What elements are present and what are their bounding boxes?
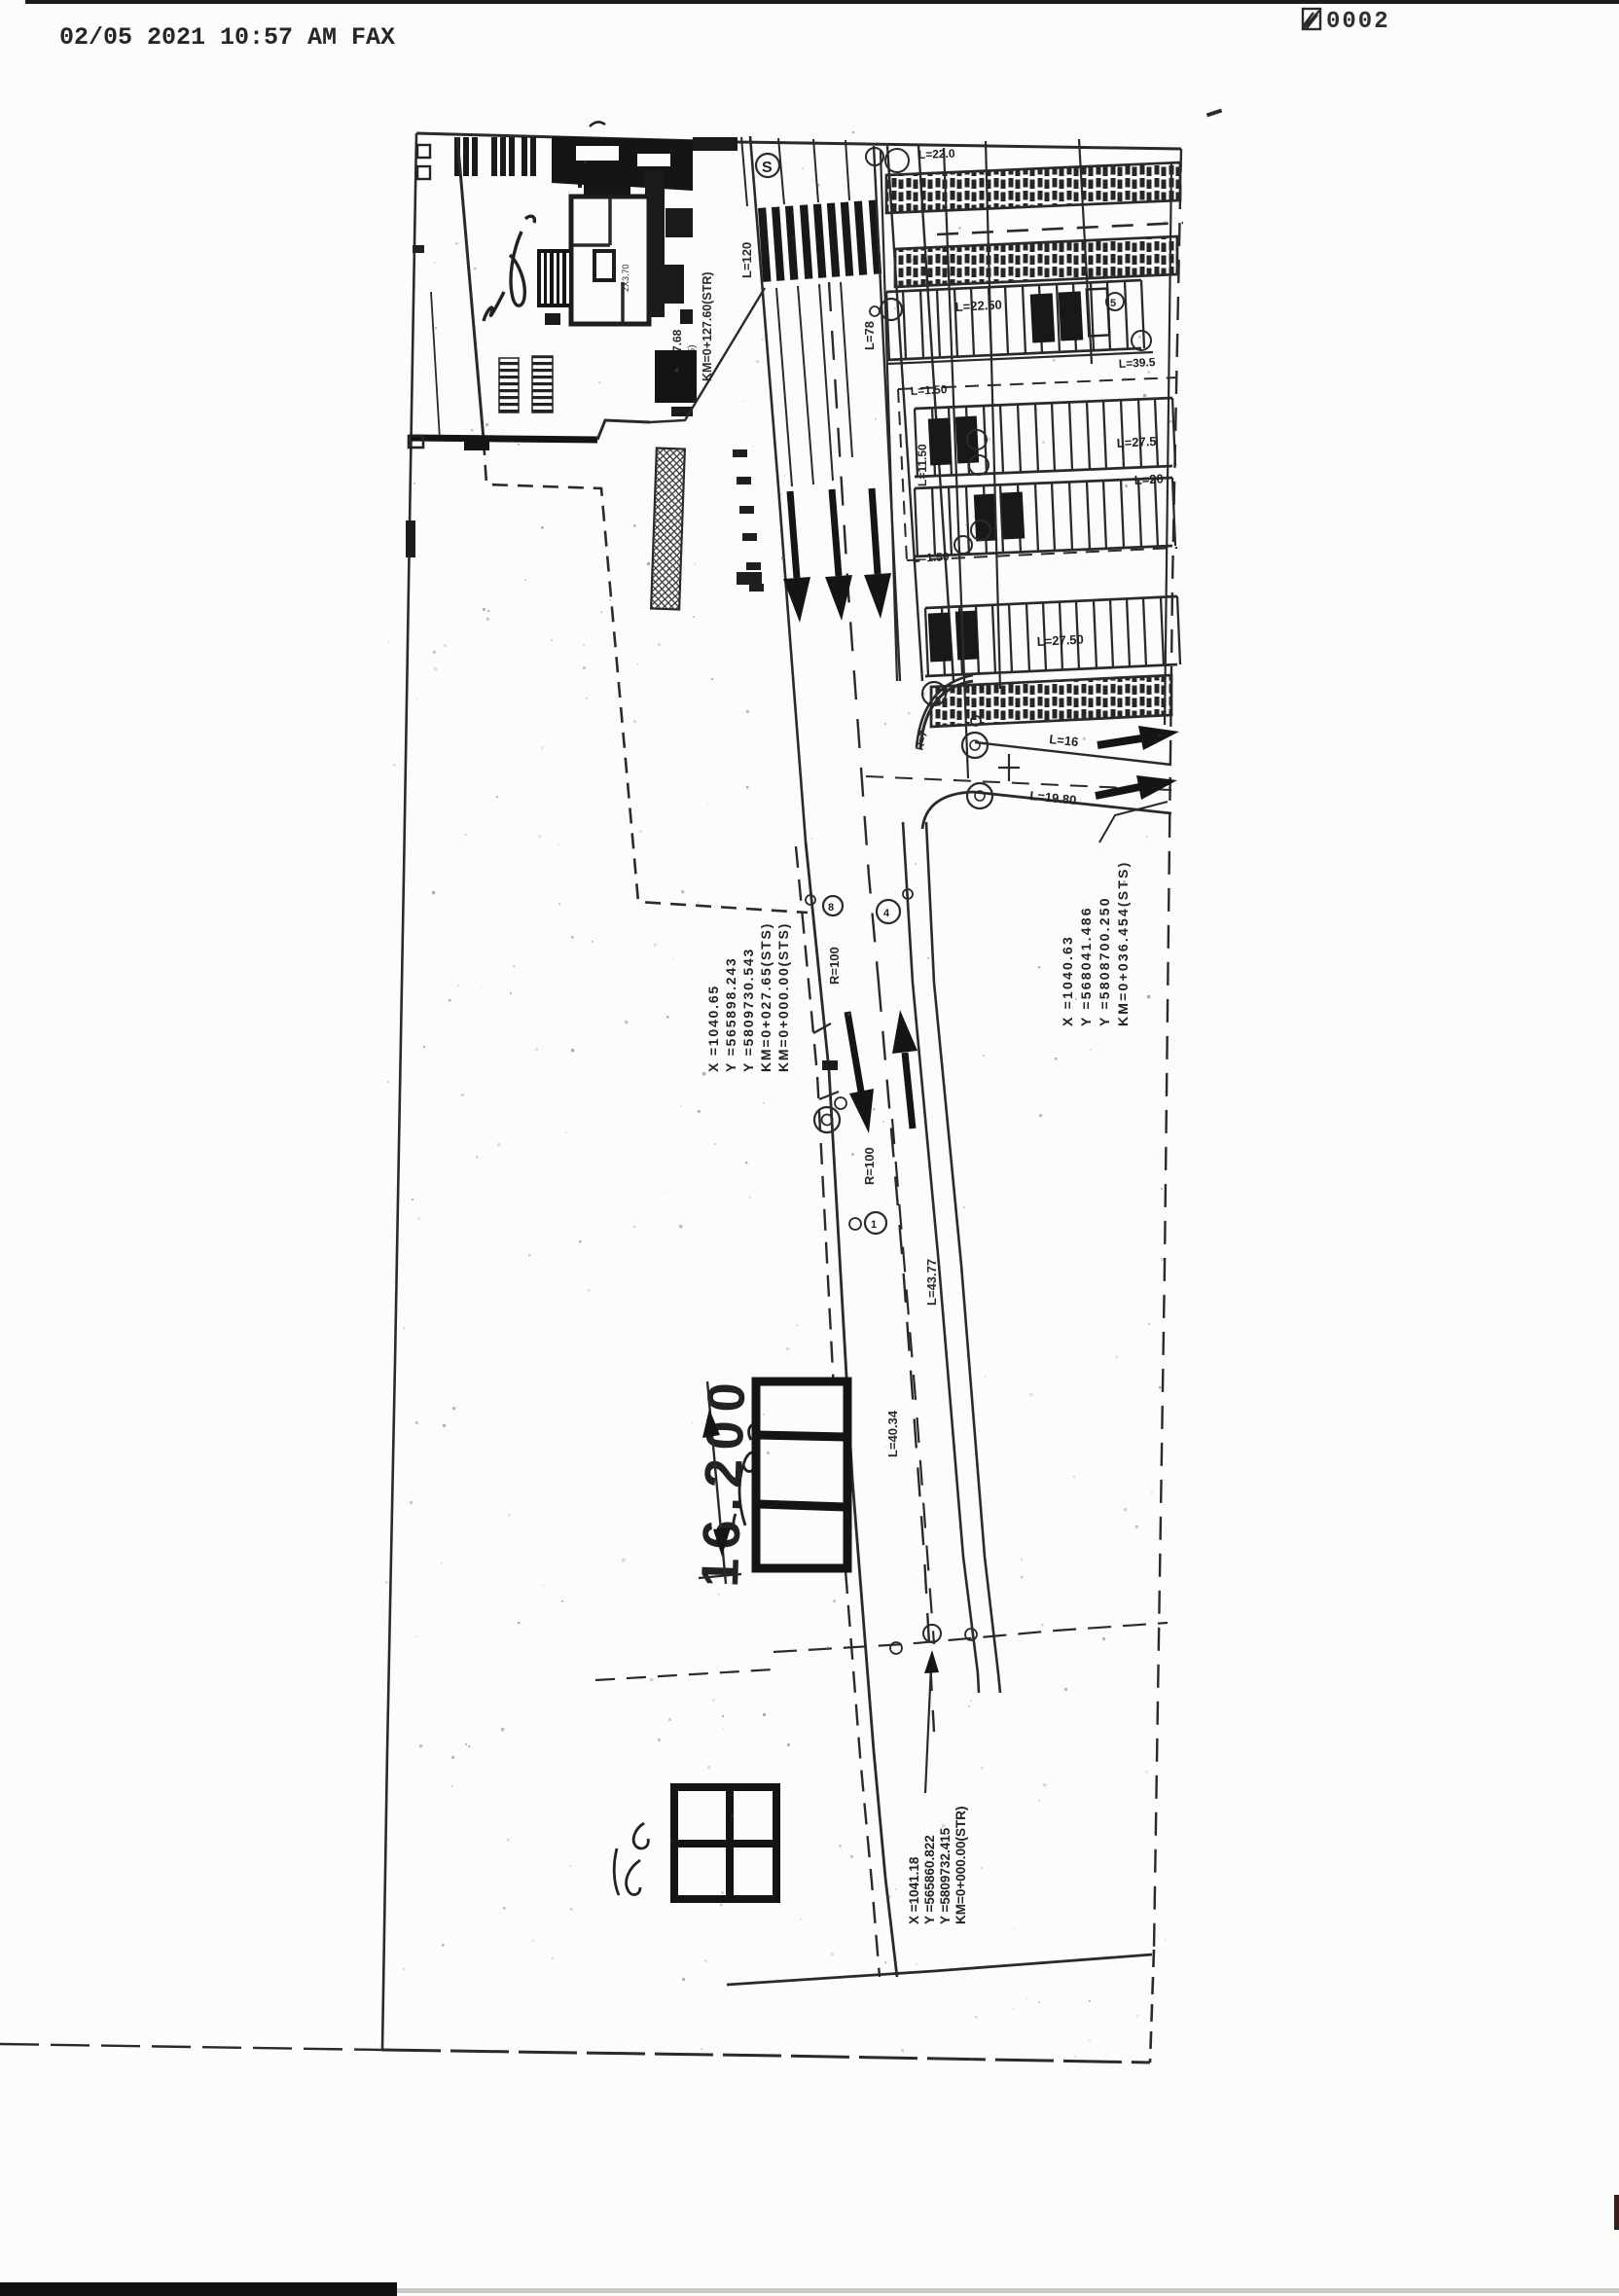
svg-text:R=100: R=100 <box>862 1147 877 1185</box>
svg-text:KM=0+027.65(STS): KM=0+027.65(STS) <box>758 922 774 1072</box>
svg-text:S: S <box>762 160 773 176</box>
svg-text:L=27.50: L=27.50 <box>1036 632 1084 649</box>
svg-text:Y =5809732.415: Y =5809732.415 <box>938 1827 953 1924</box>
svg-text:2X3.70: 2X3.70 <box>621 264 630 292</box>
svg-text:Y =565898.243: Y =565898.243 <box>723 956 738 1072</box>
svg-text:L=78: L=78 <box>862 321 877 350</box>
svg-text:L=22.0: L=22.0 <box>918 147 955 161</box>
svg-text:L=1.50: L=1.50 <box>910 382 948 398</box>
svg-text:KM=0+000.00(STS): KM=0+000.00(STS) <box>775 922 791 1072</box>
svg-text:L=16: L=16 <box>1049 732 1079 749</box>
svg-text:Y =568041.486: Y =568041.486 <box>1078 906 1094 1026</box>
svg-text:L=27.5: L=27.5 <box>1116 434 1157 450</box>
svg-text:5: 5 <box>1110 298 1116 309</box>
svg-text:L=39.5: L=39.5 <box>1118 355 1156 371</box>
svg-text:Y =565860.822: Y =565860.822 <box>922 1835 937 1924</box>
svg-text:L=11.50: L=11.50 <box>916 444 929 486</box>
svg-text:L=120: L=120 <box>739 242 754 278</box>
svg-text:L=22.50: L=22.50 <box>954 298 1002 314</box>
svg-text:X =1041.18: X =1041.18 <box>907 1856 921 1924</box>
svg-text:02/05 2021 10:57 AM FAX: 02/05 2021 10:57 AM FAX <box>59 23 395 52</box>
svg-text:X =1040.65: X =1040.65 <box>705 985 721 1072</box>
svg-text:X =1040.63: X =1040.63 <box>1060 935 1075 1026</box>
svg-text:Y =5808700.250: Y =5808700.250 <box>1097 896 1112 1026</box>
svg-text:L=19.80: L=19.80 <box>1029 788 1077 807</box>
svg-text:R=100: R=100 <box>827 947 842 985</box>
svg-text:1: 1 <box>871 1219 877 1231</box>
svg-text:8: 8 <box>828 902 834 914</box>
svg-text:Y =5809730.543: Y =5809730.543 <box>740 948 756 1072</box>
svg-text:0002: 0002 <box>1326 9 1390 35</box>
svg-text:7.68: 7.68 <box>670 329 684 352</box>
svg-text:KM=0+000.00(STR): KM=0+000.00(STR) <box>953 1806 968 1924</box>
svg-text:L=1.50: L=1.50 <box>912 550 950 565</box>
svg-text:L=20: L=20 <box>1133 471 1164 487</box>
svg-text:4: 4 <box>883 908 890 919</box>
svg-text:L=43.77: L=43.77 <box>924 1259 939 1306</box>
svg-text:KM=0+036.454(STS): KM=0+036.454(STS) <box>1115 861 1131 1026</box>
svg-text:L=40.34: L=40.34 <box>885 1410 900 1457</box>
svg-text:KM=0+127.60(STR): KM=0+127.60(STR) <box>701 271 714 381</box>
